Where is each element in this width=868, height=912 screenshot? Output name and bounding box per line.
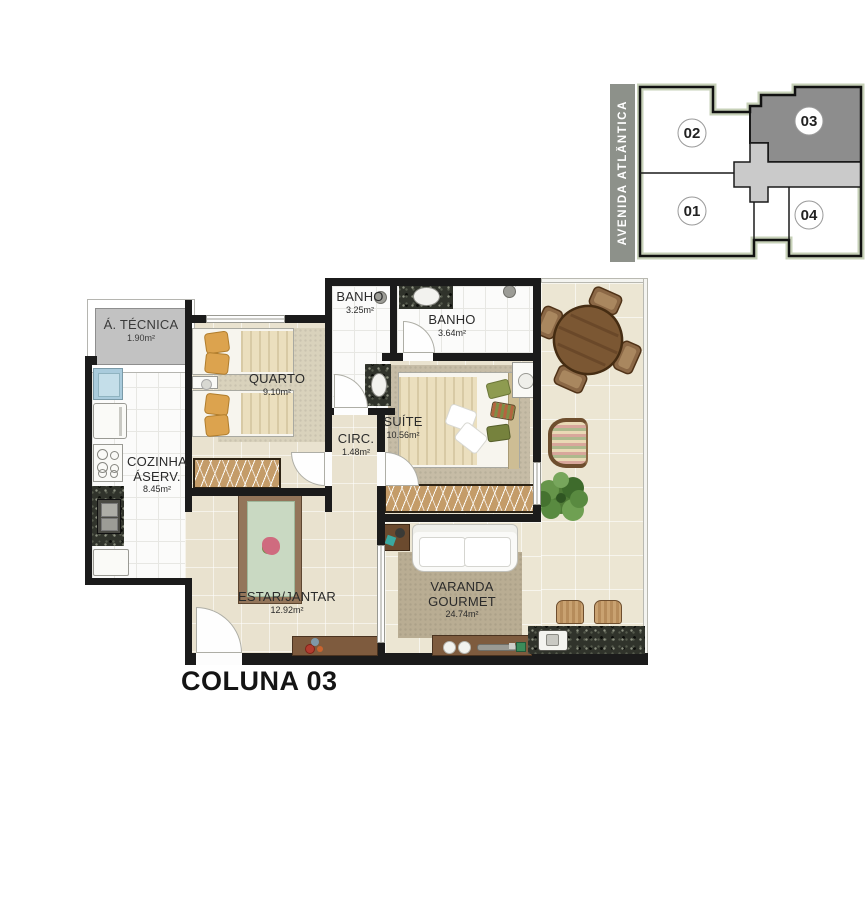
street-label: AVENIDA ATLÂNTICA bbox=[617, 100, 629, 245]
banho1-sink bbox=[371, 373, 387, 397]
sink-bowl bbox=[101, 518, 118, 531]
unit-03-number: 03 bbox=[801, 113, 818, 130]
unit-01-number: 01 bbox=[684, 203, 701, 220]
burner-icon bbox=[98, 469, 107, 478]
tank-basin bbox=[98, 373, 120, 397]
pillow bbox=[204, 393, 230, 417]
window bbox=[533, 462, 541, 505]
wall bbox=[533, 286, 541, 462]
suite-wardrobe bbox=[384, 484, 537, 513]
wall bbox=[377, 643, 385, 657]
burner-icon bbox=[110, 451, 119, 460]
pillow bbox=[204, 330, 231, 354]
sofa-cushion bbox=[419, 537, 466, 567]
laundry-tank bbox=[93, 368, 123, 400]
banho2-sink bbox=[413, 287, 440, 306]
decor-icon bbox=[395, 528, 405, 538]
unit-02-number: 02 bbox=[684, 125, 701, 142]
kitchen-sink bbox=[97, 499, 121, 534]
wall bbox=[85, 362, 92, 585]
kitchen-cabinet bbox=[93, 549, 129, 576]
sink-bowl bbox=[101, 503, 118, 517]
room-label-a-tecnica: Á. TÉCNICA 1.90m² bbox=[104, 318, 179, 343]
decor-icon bbox=[509, 643, 515, 649]
sink-bowl bbox=[546, 634, 559, 646]
unit-04-number: 04 bbox=[801, 207, 818, 224]
lamp-icon bbox=[201, 379, 212, 390]
wall bbox=[325, 278, 332, 415]
decor-icon bbox=[317, 646, 323, 652]
wall bbox=[382, 353, 403, 361]
wall bbox=[185, 578, 192, 658]
flower-centerpiece-icon bbox=[262, 537, 280, 555]
window bbox=[206, 315, 285, 323]
wall bbox=[85, 356, 97, 365]
kitchen-counter bbox=[92, 486, 124, 546]
door-opening bbox=[334, 408, 368, 415]
terrace-railing-top bbox=[541, 278, 645, 283]
floorplan-page: AVENIDA ATLÂNTICA 02 03 01 04 bbox=[0, 0, 868, 912]
wall bbox=[325, 415, 332, 452]
cushion-striped bbox=[490, 401, 516, 421]
dining-table bbox=[238, 492, 302, 604]
plan-title: COLUNA 03 bbox=[181, 666, 338, 697]
banho1-vanity bbox=[365, 364, 391, 406]
plate-icon bbox=[458, 641, 471, 654]
wall bbox=[325, 278, 541, 286]
wall bbox=[377, 505, 385, 545]
decor-icon bbox=[516, 642, 526, 652]
room-label-varanda: VARANDA GOURMET 24.74m² bbox=[428, 580, 496, 619]
room-label-suite: SUÍTE 10.56m² bbox=[383, 415, 422, 440]
door-opening bbox=[196, 653, 242, 665]
single-bed-1 bbox=[192, 328, 294, 375]
single-bed-2 bbox=[192, 390, 294, 437]
stove bbox=[93, 444, 123, 482]
terrace-railing-right bbox=[643, 278, 648, 660]
wall bbox=[377, 514, 541, 522]
sliding-glass-door bbox=[377, 545, 385, 643]
key-plan: 02 03 01 04 bbox=[637, 81, 865, 263]
nightstand bbox=[192, 376, 218, 389]
room-label-banho1: BANHO 3.25m² bbox=[336, 290, 383, 315]
fridge-handle bbox=[119, 407, 122, 436]
sofa bbox=[412, 524, 518, 572]
door-opening bbox=[403, 353, 433, 361]
pillow bbox=[204, 352, 230, 375]
gourmet-counter bbox=[528, 626, 645, 654]
bar-stool bbox=[594, 600, 622, 624]
cushion-green bbox=[486, 423, 511, 442]
wall bbox=[325, 408, 334, 415]
decor-icon bbox=[385, 535, 397, 547]
varanda-console bbox=[432, 635, 532, 656]
counter-sink bbox=[538, 630, 568, 651]
plate-icon bbox=[443, 641, 456, 654]
estar-sideboard bbox=[292, 636, 378, 656]
room-label-circ: CIRC. 1.48m² bbox=[338, 432, 374, 457]
burner-icon bbox=[110, 470, 118, 478]
sofa-cushion bbox=[464, 537, 511, 567]
room-label-quarto: QUARTO 9.10m² bbox=[249, 372, 305, 397]
burner-icon bbox=[97, 449, 108, 460]
wall bbox=[192, 315, 206, 323]
wall bbox=[185, 488, 332, 496]
room-label-banho2: BANHO 3.64m² bbox=[428, 313, 475, 338]
room-label-estar: ESTAR/JANTAR 12.92m² bbox=[238, 590, 336, 615]
fridge bbox=[93, 403, 127, 439]
decor-icon bbox=[311, 638, 319, 646]
banho2-vanity bbox=[399, 283, 453, 309]
door-opening bbox=[377, 452, 385, 486]
room-label-cozinha: COZINHA ÁSERV. 8.45m² bbox=[127, 455, 187, 494]
terrace-round-table-set bbox=[532, 284, 644, 396]
pillow bbox=[204, 414, 230, 437]
wall bbox=[433, 353, 541, 361]
bar-stool bbox=[556, 600, 584, 624]
wall bbox=[85, 578, 192, 585]
blanket bbox=[241, 331, 293, 372]
wall bbox=[390, 278, 397, 360]
banho2-shower-head-icon bbox=[503, 285, 516, 298]
door-opening bbox=[325, 452, 332, 486]
street-bar: AVENIDA ATLÂNTICA bbox=[610, 84, 635, 262]
blanket bbox=[241, 393, 293, 434]
quarto-wardrobe bbox=[193, 458, 281, 489]
armchair bbox=[548, 418, 588, 468]
side-table bbox=[382, 524, 410, 551]
